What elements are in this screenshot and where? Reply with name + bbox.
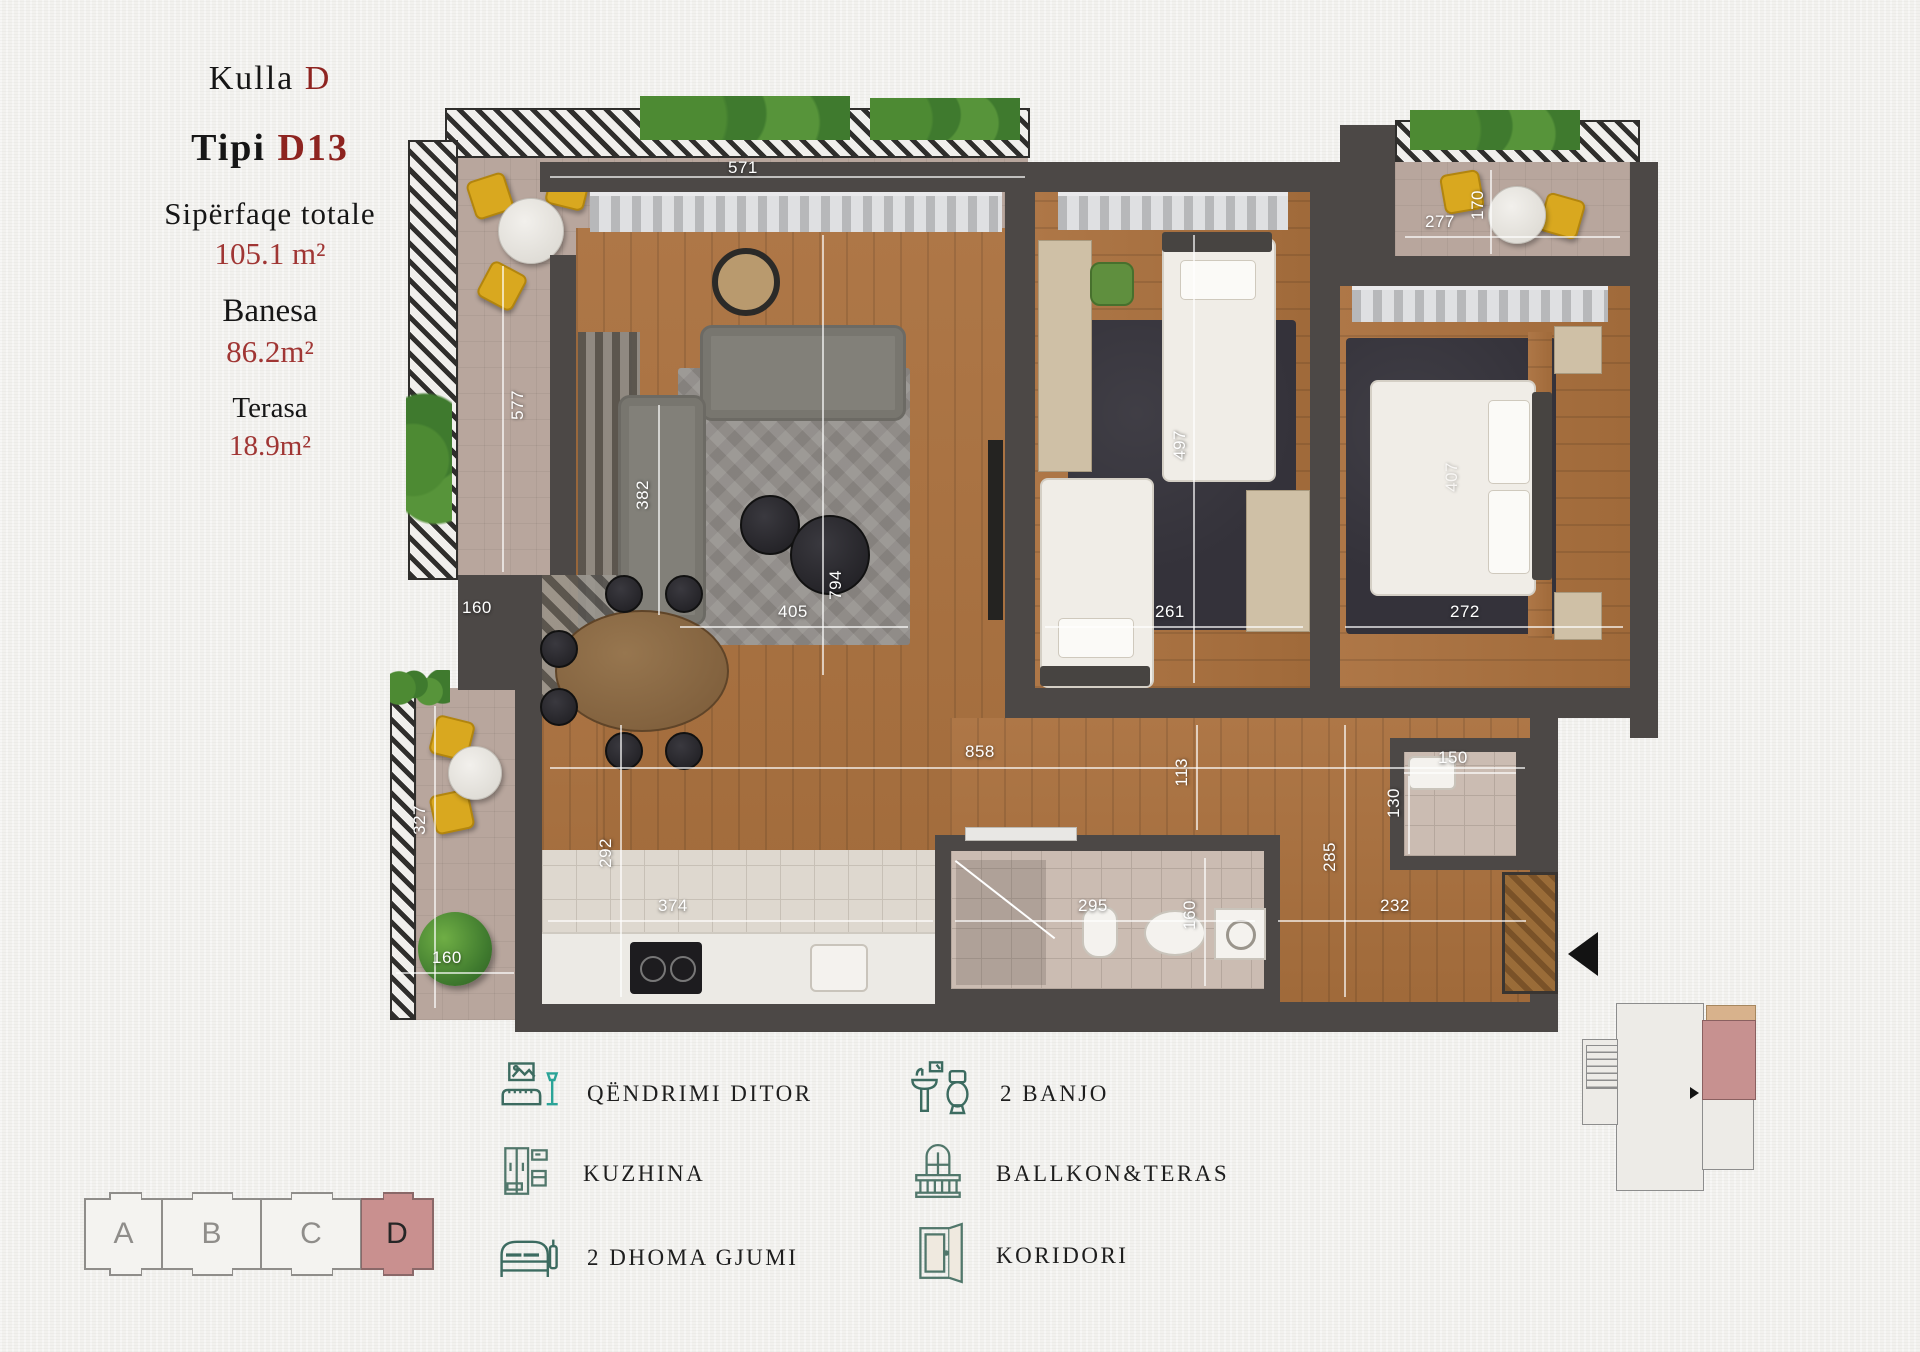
dimension-line	[680, 626, 908, 628]
entrance-arrow	[1568, 932, 1598, 976]
strip-section-a: A	[84, 1198, 162, 1270]
wall	[1340, 256, 1630, 286]
sofa-top	[700, 325, 906, 421]
bathroom-sliding-door	[965, 827, 1077, 841]
key-plan-highlighted-unit	[1702, 1020, 1756, 1100]
dimension-line	[620, 725, 622, 997]
railing-plants	[406, 350, 452, 570]
strip-section-c: C	[261, 1198, 361, 1270]
tv-console	[988, 440, 1003, 620]
legend-item-bathrooms: 2 BANJO	[908, 1058, 1109, 1129]
burner	[640, 956, 666, 982]
bedroom2-curtains	[1352, 286, 1608, 322]
wall-mirror	[712, 248, 780, 316]
balcony-table	[448, 746, 502, 800]
bedroom1-desk	[1038, 240, 1092, 472]
bed-headboard	[1532, 392, 1552, 580]
corridor-icon	[908, 1222, 970, 1289]
legend-label: KORIDORI	[996, 1243, 1128, 1269]
legend-item-kitchen: KUZHINA	[495, 1140, 705, 1207]
dimension-line	[1408, 776, 1410, 854]
dim-label: 130	[1384, 788, 1404, 818]
dimension-line	[1045, 626, 1303, 628]
legend-label: QËNDRIMI DITOR	[587, 1081, 813, 1107]
legend-label: BALLKON&TERAS	[996, 1161, 1229, 1187]
strip-section-d: D	[361, 1198, 434, 1270]
dim-label: 160	[432, 948, 462, 968]
dimension-line	[822, 235, 824, 675]
dim-label: 292	[596, 838, 616, 868]
dim-label: 150	[1438, 748, 1468, 768]
entrance-door	[1502, 872, 1558, 994]
dim-label: 577	[508, 390, 528, 420]
bed-headboard	[1162, 232, 1272, 252]
nightstand	[1554, 592, 1602, 640]
dining-chair	[605, 732, 643, 770]
dim-label: 382	[633, 480, 653, 510]
dining-chair	[540, 688, 578, 726]
dimension-line	[1193, 235, 1195, 683]
railing-plants	[390, 670, 450, 706]
dimension-line	[550, 767, 1525, 769]
building-strip: A B C D	[84, 1198, 434, 1270]
pergola-plants	[1410, 110, 1580, 150]
dim-label: 407	[1442, 462, 1462, 492]
bed-pillow	[1488, 400, 1530, 484]
living-curtains	[590, 192, 1002, 232]
dining-chair	[605, 575, 643, 613]
floor-plan: 571 277 170 577 382 160 405 794 261 497 …	[390, 70, 1660, 1070]
living-room-icon	[495, 1058, 561, 1129]
wall	[1310, 162, 1340, 715]
wall	[515, 1002, 1558, 1032]
dimension-line	[1404, 772, 1516, 774]
dim-label: 794	[826, 570, 846, 600]
dim-label: 272	[1450, 602, 1480, 622]
dim-label: 160	[1180, 900, 1200, 930]
bedroom1-dresser	[1246, 490, 1310, 632]
balcony-icon	[908, 1140, 970, 1207]
key-plan	[1568, 995, 1778, 1210]
dimension-line	[1405, 236, 1620, 238]
dim-label: 327	[410, 805, 430, 835]
dining-table	[555, 610, 729, 732]
bed-pillow	[1488, 490, 1530, 574]
dining-chair	[665, 732, 703, 770]
dim-label: 858	[965, 742, 995, 762]
dim-label: 405	[778, 602, 808, 622]
type-value: D13	[277, 127, 348, 169]
wall	[1340, 125, 1395, 258]
pergola-plants	[640, 96, 850, 140]
legend-item-living: QËNDRIMI DITOR	[495, 1058, 813, 1129]
dimension-line	[1344, 725, 1346, 997]
bedroom1-curtains	[1058, 192, 1288, 230]
dim-label: 295	[1078, 896, 1108, 916]
dimension-line	[396, 972, 514, 974]
type-label: Tipi	[191, 127, 266, 169]
kitchen-sink	[810, 944, 868, 992]
dim-label: 285	[1320, 842, 1340, 872]
dimension-line	[1278, 920, 1526, 922]
dimension-line	[955, 920, 1255, 922]
dim-label: 170	[1468, 190, 1488, 220]
bed-pillow	[1058, 618, 1134, 658]
dining-chair	[665, 575, 703, 613]
dim-label: 113	[1172, 758, 1192, 787]
dimension-line	[658, 405, 660, 615]
dim-label: 261	[1155, 602, 1185, 622]
dim-label: 277	[1425, 212, 1455, 232]
cooktop	[630, 942, 702, 994]
dimension-line	[1204, 858, 1206, 986]
legend-label: 2 BANJO	[1000, 1081, 1109, 1107]
bathroom-icon	[908, 1058, 974, 1129]
dimension-line	[1196, 725, 1198, 830]
burner	[670, 956, 696, 982]
bed-headboard	[1040, 666, 1150, 686]
dim-label: 232	[1380, 896, 1410, 916]
dimension-line	[1490, 170, 1492, 254]
legend-label: KUZHINA	[583, 1161, 705, 1187]
bed-pillow	[1180, 260, 1256, 300]
dimension-line	[548, 920, 933, 922]
legend-item-balcony: BALLKON&TERAS	[908, 1140, 1229, 1207]
key-plan-unit-arrow	[1690, 1087, 1699, 1099]
dimension-line	[502, 266, 504, 572]
washing-machine	[1214, 908, 1266, 960]
pergola-plants	[870, 98, 1020, 140]
wall	[515, 575, 542, 1032]
legend-item-corridor: KORIDORI	[908, 1222, 1128, 1289]
dimension-line	[1345, 626, 1623, 628]
dim-label: 497	[1170, 430, 1190, 460]
wall	[1005, 688, 1658, 718]
dimension-line	[550, 176, 1025, 178]
balcony-railing	[390, 688, 416, 1020]
key-plan-stairs	[1586, 1045, 1618, 1089]
nightstand	[1554, 326, 1602, 374]
dim-label: 571	[728, 158, 758, 178]
legend-label: 2 DHOMA GJUMI	[587, 1245, 798, 1271]
washer-drum	[1226, 920, 1256, 950]
dim-label: 374	[658, 896, 688, 916]
bedroom-icon	[495, 1222, 561, 1293]
tower-value: D	[305, 60, 332, 97]
dim-label: 160	[462, 598, 492, 618]
legend-item-bedrooms: 2 DHOMA GJUMI	[495, 1222, 798, 1293]
wall	[1630, 162, 1658, 738]
desk-chair	[1090, 262, 1134, 306]
kitchen-counter	[542, 932, 950, 1004]
page: { "title_panel": { "kulla_label": "Kulla…	[0, 0, 1920, 1352]
tower-label: Kulla	[209, 60, 295, 97]
dining-chair	[540, 630, 578, 668]
wall	[1005, 162, 1035, 715]
strip-section-b: B	[162, 1198, 261, 1270]
kitchen-icon	[495, 1140, 557, 1207]
